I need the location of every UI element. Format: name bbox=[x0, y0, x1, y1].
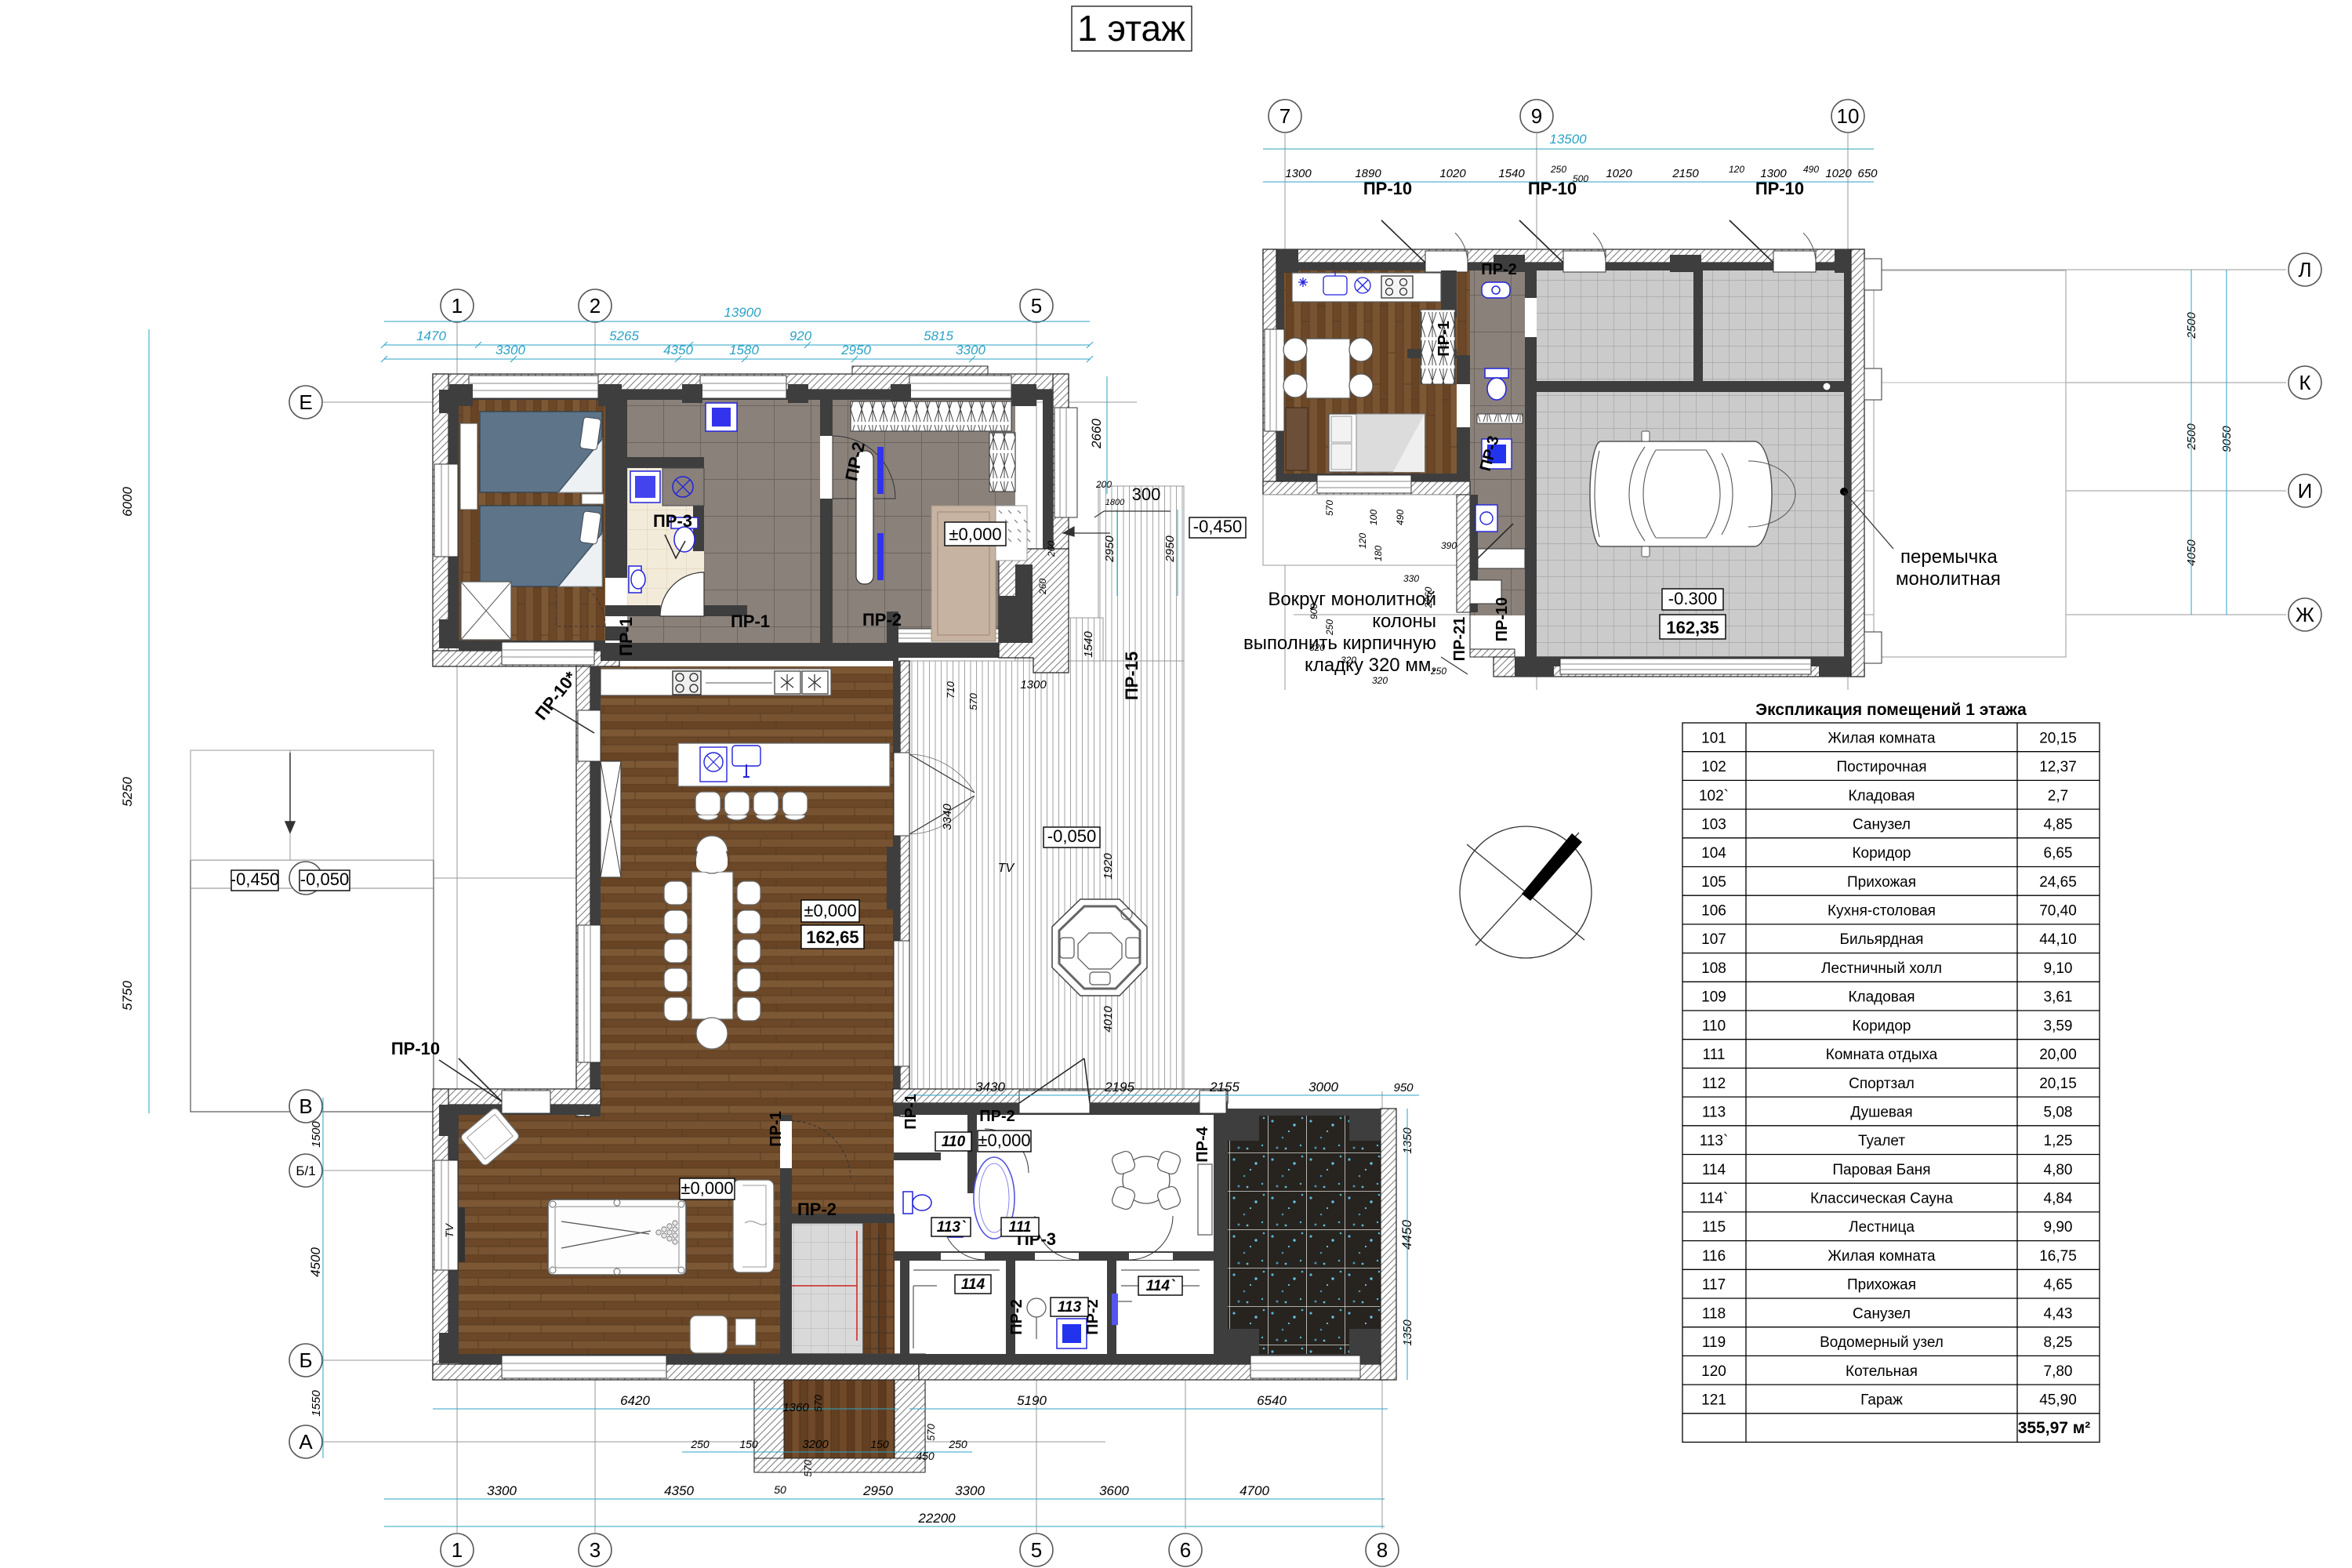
svg-text:ПР-2: ПР-2 bbox=[862, 610, 902, 630]
svg-text:1580: 1580 bbox=[729, 343, 759, 358]
svg-text:4500: 4500 bbox=[308, 1247, 323, 1277]
svg-text:-0,050: -0,050 bbox=[300, 869, 349, 889]
svg-text:ПР-15: ПР-15 bbox=[1122, 652, 1142, 700]
svg-text:1300: 1300 bbox=[1285, 167, 1312, 180]
svg-text:ПР-10: ПР-10 bbox=[391, 1039, 440, 1058]
svg-text:ПР-10: ПР-10 bbox=[1755, 179, 1804, 198]
svg-text:Бильярдная: Бильярдная bbox=[1840, 931, 1924, 948]
svg-text:ПР-2: ПР-2 bbox=[1008, 1299, 1025, 1335]
svg-text:320: 320 bbox=[1372, 675, 1388, 686]
svg-text:120: 120 bbox=[1701, 1363, 1726, 1380]
svg-text:111: 111 bbox=[1703, 1047, 1726, 1063]
svg-text:5750: 5750 bbox=[120, 981, 135, 1011]
svg-text:9,90: 9,90 bbox=[2044, 1219, 2073, 1236]
svg-text:6540: 6540 bbox=[1257, 1393, 1287, 1408]
svg-text:110: 110 bbox=[942, 1134, 966, 1150]
svg-text:Кладовая: Кладовая bbox=[1848, 788, 1915, 804]
svg-text:8,25: 8,25 bbox=[2044, 1334, 2073, 1351]
svg-text:ПР-1: ПР-1 bbox=[768, 1111, 785, 1147]
svg-text:450: 450 bbox=[916, 1450, 935, 1462]
svg-text:1,25: 1,25 bbox=[2044, 1133, 2073, 1149]
svg-text:колоны: колоны bbox=[1372, 611, 1436, 632]
svg-text:162,35: 162,35 bbox=[1666, 618, 1719, 637]
svg-text:110: 110 bbox=[1702, 1018, 1726, 1034]
svg-text:102: 102 bbox=[1701, 759, 1726, 775]
svg-text:TV: TV bbox=[443, 1222, 456, 1238]
svg-text:70,40: 70,40 bbox=[2039, 903, 2077, 920]
svg-text:180: 180 bbox=[1373, 546, 1384, 561]
svg-text:Прихожая: Прихожая bbox=[1847, 874, 1916, 891]
svg-text:24,65: 24,65 bbox=[2039, 874, 2077, 891]
svg-text:13900: 13900 bbox=[724, 305, 761, 320]
svg-text:3: 3 bbox=[590, 1538, 601, 1562]
svg-text:-0.300: -0.300 bbox=[1668, 589, 1717, 608]
svg-text:102`: 102` bbox=[1699, 788, 1729, 804]
svg-text:1500: 1500 bbox=[310, 1121, 323, 1148]
svg-text:Санузел: Санузел bbox=[1853, 816, 1911, 833]
svg-text:Классическая Сауна: Классическая Сауна bbox=[1810, 1191, 1953, 1207]
svg-text:116: 116 bbox=[1702, 1248, 1726, 1265]
svg-text:TV: TV bbox=[998, 862, 1015, 875]
svg-text:20,00: 20,00 bbox=[2039, 1047, 2077, 1063]
svg-text:1020: 1020 bbox=[1439, 167, 1466, 180]
svg-text:5265: 5265 bbox=[609, 328, 639, 343]
svg-text:ПР-1: ПР-1 bbox=[731, 612, 770, 631]
svg-text:Кладовая: Кладовая bbox=[1848, 989, 1915, 1006]
svg-text:Постирочная: Постирочная bbox=[1836, 759, 1926, 775]
svg-text:1470: 1470 bbox=[416, 328, 446, 343]
svg-text:ПР-21: ПР-21 bbox=[1451, 617, 1468, 662]
svg-text:1 этаж: 1 этаж bbox=[1077, 8, 1185, 49]
svg-text:50: 50 bbox=[774, 1483, 786, 1496]
svg-text:-0,450: -0,450 bbox=[230, 869, 279, 889]
svg-text:ПР-2: ПР-2 bbox=[1481, 261, 1517, 278]
svg-text:300: 300 bbox=[1132, 485, 1161, 504]
svg-text:А: А bbox=[299, 1430, 313, 1454]
svg-text:260: 260 bbox=[1037, 579, 1048, 595]
svg-text:Вокруг монолитной: Вокруг монолитной bbox=[1268, 589, 1436, 610]
svg-text:570: 570 bbox=[967, 692, 979, 710]
svg-text:120: 120 bbox=[1729, 164, 1744, 175]
svg-text:Гараж: Гараж bbox=[1860, 1392, 1903, 1408]
svg-text:16,75: 16,75 bbox=[2039, 1248, 2077, 1265]
svg-text:Водомерный узел: Водомерный узел bbox=[1820, 1334, 1944, 1351]
svg-text:250: 250 bbox=[1550, 164, 1566, 175]
svg-text:Экспликация помещений 1 этажа: Экспликация помещений 1 этажа bbox=[1755, 701, 2027, 719]
svg-text:ПР-1: ПР-1 bbox=[616, 617, 636, 656]
svg-text:100: 100 bbox=[1368, 510, 1379, 525]
svg-text:570: 570 bbox=[1324, 500, 1335, 516]
svg-text:20,15: 20,15 bbox=[2039, 730, 2077, 746]
svg-text:Б/1: Б/1 bbox=[296, 1163, 315, 1178]
svg-text:3200: 3200 bbox=[802, 1438, 829, 1451]
svg-text:3300: 3300 bbox=[955, 1483, 985, 1498]
svg-text:113: 113 bbox=[1702, 1104, 1726, 1120]
svg-text:114`: 114` bbox=[1146, 1278, 1175, 1294]
svg-text:920: 920 bbox=[789, 328, 812, 343]
svg-text:107: 107 bbox=[1701, 931, 1726, 948]
svg-text:250: 250 bbox=[690, 1438, 710, 1450]
svg-text:150: 150 bbox=[870, 1438, 889, 1450]
svg-text:4,85: 4,85 bbox=[2044, 816, 2073, 833]
svg-text:Спортзал: Спортзал bbox=[1849, 1076, 1915, 1092]
svg-text:ПР-10: ПР-10 bbox=[1528, 179, 1577, 198]
svg-text:200: 200 bbox=[1095, 479, 1112, 490]
svg-text:3300: 3300 bbox=[487, 1483, 517, 1498]
svg-text:3430: 3430 bbox=[975, 1080, 1005, 1094]
svg-text:1800: 1800 bbox=[1105, 498, 1125, 507]
svg-text:2195: 2195 bbox=[1104, 1080, 1134, 1094]
svg-text:-0,450: -0,450 bbox=[1193, 517, 1242, 536]
svg-text:±0,000: ±0,000 bbox=[681, 1178, 733, 1198]
svg-text:Б: Б bbox=[299, 1348, 312, 1372]
svg-text:355,97 м²: 355,97 м² bbox=[2018, 1419, 2091, 1437]
svg-text:Душевая: Душевая bbox=[1850, 1104, 1912, 1120]
svg-text:104: 104 bbox=[1701, 845, 1726, 862]
svg-text:112: 112 bbox=[1702, 1076, 1726, 1092]
svg-text:2950: 2950 bbox=[1103, 535, 1116, 563]
svg-text:Л: Л bbox=[2298, 258, 2311, 281]
svg-text:950: 950 bbox=[1393, 1081, 1414, 1094]
svg-text:3600: 3600 bbox=[1099, 1483, 1129, 1498]
svg-text:ПР-3: ПР-3 bbox=[653, 511, 692, 531]
svg-text:250: 250 bbox=[948, 1438, 967, 1450]
svg-text:Лестничный холл: Лестничный холл bbox=[1821, 960, 1942, 977]
svg-text:5,08: 5,08 bbox=[2044, 1104, 2073, 1120]
svg-text:ПР-4: ПР-4 bbox=[1194, 1126, 1211, 1162]
svg-text:44,10: 44,10 bbox=[2039, 931, 2077, 948]
svg-text:114: 114 bbox=[961, 1276, 985, 1293]
svg-text:монолитная: монолитная bbox=[1896, 568, 2001, 590]
svg-text:4,80: 4,80 bbox=[2044, 1162, 2073, 1178]
svg-text:1: 1 bbox=[452, 294, 463, 318]
svg-text:2950: 2950 bbox=[862, 1483, 893, 1498]
svg-text:-0,050: -0,050 bbox=[1047, 826, 1096, 846]
svg-text:6000: 6000 bbox=[120, 487, 135, 517]
svg-text:К: К bbox=[2299, 371, 2310, 394]
svg-text:4,43: 4,43 bbox=[2044, 1305, 2073, 1322]
svg-text:Туалет: Туалет bbox=[1858, 1133, 1905, 1149]
svg-text:Жилая комната: Жилая комната bbox=[1828, 730, 1936, 746]
svg-text:6,65: 6,65 bbox=[2044, 845, 2073, 862]
svg-text:105: 105 bbox=[1701, 874, 1726, 891]
svg-text:490: 490 bbox=[1395, 510, 1406, 525]
svg-text:5: 5 bbox=[1031, 294, 1042, 318]
svg-text:ПР-2: ПР-2 bbox=[979, 1108, 1015, 1125]
svg-text:109: 109 bbox=[1701, 989, 1726, 1006]
svg-text:Е: Е bbox=[299, 390, 312, 414]
svg-text:108: 108 bbox=[1701, 960, 1726, 977]
svg-text:выполнить кирпичную: выполнить кирпичную bbox=[1243, 633, 1436, 654]
svg-text:490: 490 bbox=[1803, 164, 1819, 175]
svg-text:390: 390 bbox=[1441, 540, 1457, 551]
svg-text:4,65: 4,65 bbox=[2044, 1277, 2073, 1294]
svg-text:13500: 13500 bbox=[1549, 132, 1587, 147]
svg-text:Котельная: Котельная bbox=[1846, 1363, 1918, 1380]
svg-text:113: 113 bbox=[1058, 1299, 1082, 1316]
svg-text:1540: 1540 bbox=[1498, 167, 1525, 180]
svg-text:Ж: Ж bbox=[2296, 603, 2314, 626]
svg-text:9: 9 bbox=[1531, 104, 1542, 128]
svg-text:1020: 1020 bbox=[1825, 167, 1852, 180]
svg-text:5815: 5815 bbox=[924, 328, 953, 343]
svg-text:1: 1 bbox=[452, 1538, 463, 1562]
svg-text:1360: 1360 bbox=[782, 1401, 809, 1414]
svg-text:106: 106 bbox=[1701, 903, 1726, 920]
svg-text:±0,000: ±0,000 bbox=[949, 524, 1001, 544]
svg-text:4,84: 4,84 bbox=[2044, 1191, 2073, 1207]
svg-text:113`: 113` bbox=[937, 1219, 966, 1236]
svg-text:101: 101 bbox=[1701, 730, 1726, 746]
svg-text:кладку 320 мм.: кладку 320 мм. bbox=[1305, 655, 1436, 676]
svg-text:ПР-2: ПР-2 bbox=[797, 1200, 837, 1219]
svg-text:3,59: 3,59 bbox=[2044, 1018, 2073, 1034]
svg-text:162,65: 162,65 bbox=[806, 927, 858, 947]
svg-text:3300: 3300 bbox=[495, 343, 525, 358]
svg-text:12,37: 12,37 bbox=[2039, 759, 2077, 775]
svg-text:103: 103 bbox=[1701, 816, 1726, 833]
svg-text:20,15: 20,15 bbox=[2039, 1076, 2077, 1092]
svg-text:8: 8 bbox=[1377, 1538, 1388, 1562]
svg-text:150: 150 bbox=[739, 1438, 758, 1450]
svg-text:10: 10 bbox=[1837, 104, 1860, 128]
svg-text:115: 115 bbox=[1702, 1219, 1726, 1236]
svg-text:120: 120 bbox=[1357, 533, 1368, 549]
svg-text:7,80: 7,80 bbox=[2044, 1363, 2073, 1380]
svg-text:5190: 5190 bbox=[1017, 1393, 1047, 1408]
svg-text:2,7: 2,7 bbox=[2048, 788, 2068, 804]
svg-text:114`: 114` bbox=[1700, 1191, 1729, 1207]
svg-text:В: В bbox=[299, 1094, 312, 1118]
svg-text:2950: 2950 bbox=[840, 343, 871, 358]
svg-text:1920: 1920 bbox=[1102, 853, 1115, 880]
svg-text:111: 111 bbox=[1009, 1219, 1032, 1236]
svg-text:710: 710 bbox=[945, 681, 956, 698]
svg-text:2950: 2950 bbox=[1163, 535, 1177, 563]
svg-text:1300: 1300 bbox=[1020, 678, 1047, 691]
svg-text:Кухня-столовая: Кухня-столовая bbox=[1828, 903, 1936, 920]
svg-text:1550: 1550 bbox=[310, 1390, 323, 1417]
svg-text:22200: 22200 bbox=[917, 1511, 956, 1526]
svg-text:±0,000: ±0,000 bbox=[978, 1131, 1030, 1150]
svg-text:4010: 4010 bbox=[1102, 1006, 1115, 1033]
svg-text:5: 5 bbox=[1031, 1538, 1042, 1562]
svg-text:Коридор: Коридор bbox=[1852, 1018, 1911, 1034]
svg-text:Паровая Баня: Паровая Баня bbox=[1832, 1162, 1930, 1178]
svg-text:2660: 2660 bbox=[1089, 419, 1104, 449]
svg-text:3,61: 3,61 bbox=[2044, 989, 2073, 1006]
svg-text:3340: 3340 bbox=[941, 804, 954, 830]
svg-text:7: 7 bbox=[1279, 104, 1290, 128]
svg-text:330: 330 bbox=[1403, 573, 1419, 584]
svg-text:119: 119 bbox=[1702, 1334, 1726, 1351]
svg-text:Комната отдыха: Комната отдыха bbox=[1826, 1047, 1938, 1063]
svg-text:4350: 4350 bbox=[664, 1483, 694, 1498]
svg-text:3300: 3300 bbox=[956, 343, 985, 358]
svg-text:Коридор: Коридор bbox=[1852, 845, 1911, 862]
svg-text:ПР-1: ПР-1 bbox=[1436, 321, 1453, 357]
svg-text:перемычка: перемычка bbox=[1900, 546, 1998, 568]
svg-text:4700: 4700 bbox=[1240, 1483, 1269, 1498]
svg-text:570: 570 bbox=[812, 1394, 824, 1411]
svg-text:2: 2 bbox=[590, 294, 601, 318]
svg-text:±0,000: ±0,000 bbox=[804, 901, 856, 920]
svg-text:45,90: 45,90 bbox=[2039, 1392, 2077, 1408]
svg-text:118: 118 bbox=[1702, 1305, 1726, 1322]
svg-text:117: 117 bbox=[1702, 1277, 1726, 1294]
svg-text:ПР-1: ПР-1 bbox=[902, 1094, 920, 1130]
svg-text:Жилая комната: Жилая комната bbox=[1828, 1248, 1936, 1265]
svg-text:113`: 113` bbox=[1700, 1133, 1729, 1149]
svg-text:ПР-10: ПР-10 bbox=[1494, 597, 1511, 642]
svg-text:260: 260 bbox=[1046, 541, 1057, 557]
svg-text:Санузел: Санузел bbox=[1853, 1305, 1911, 1322]
svg-text:Прихожая: Прихожая bbox=[1847, 1277, 1916, 1294]
svg-text:5250: 5250 bbox=[120, 777, 135, 807]
svg-text:3000: 3000 bbox=[1308, 1080, 1338, 1094]
svg-text:9,10: 9,10 bbox=[2044, 960, 2073, 977]
svg-text:121: 121 bbox=[1701, 1392, 1726, 1408]
svg-text:6420: 6420 bbox=[620, 1393, 650, 1408]
svg-text:6: 6 bbox=[1180, 1538, 1191, 1562]
svg-text:650: 650 bbox=[1857, 167, 1878, 180]
svg-text:Лестница: Лестница bbox=[1849, 1219, 1915, 1236]
svg-text:2155: 2155 bbox=[1209, 1080, 1240, 1094]
svg-text:4350: 4350 bbox=[663, 343, 693, 358]
svg-text:ПР-10: ПР-10 bbox=[1363, 179, 1412, 198]
svg-text:570: 570 bbox=[802, 1459, 814, 1476]
svg-text:1540: 1540 bbox=[1082, 631, 1095, 658]
svg-text:570: 570 bbox=[925, 1423, 937, 1440]
svg-text:2150: 2150 bbox=[1671, 167, 1699, 180]
svg-text:И: И bbox=[2298, 479, 2313, 503]
svg-text:1020: 1020 bbox=[1606, 167, 1632, 180]
svg-text:114: 114 bbox=[1702, 1162, 1726, 1178]
